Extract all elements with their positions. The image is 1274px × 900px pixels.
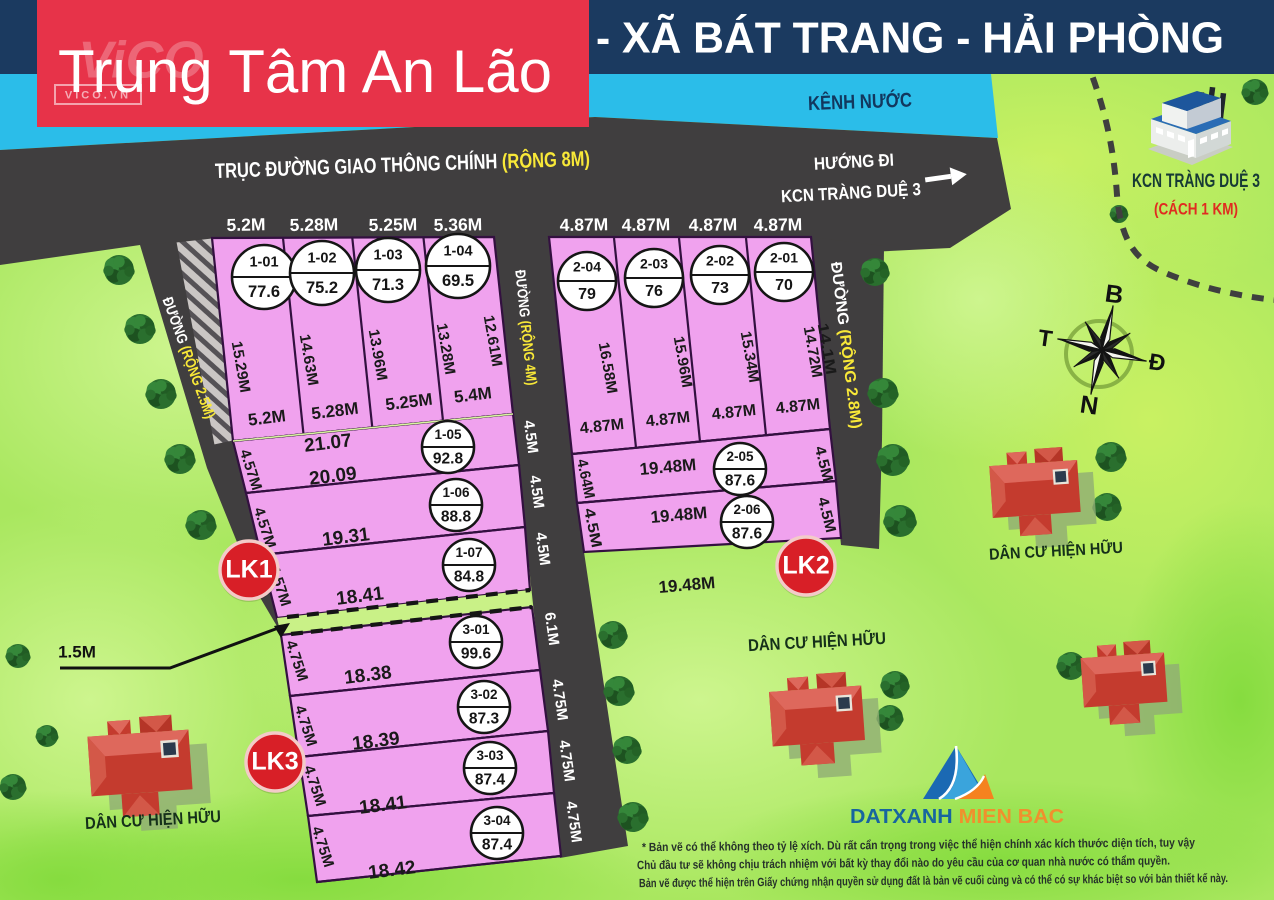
svg-text:3-04: 3-04 <box>483 813 511 828</box>
svg-text:VICO.VN: VICO.VN <box>65 89 131 101</box>
svg-text:1-04: 1-04 <box>443 243 472 259</box>
svg-text:87.6: 87.6 <box>732 526 763 543</box>
svg-text:1-02: 1-02 <box>307 250 336 266</box>
svg-text:92.8: 92.8 <box>433 451 464 468</box>
svg-text:76: 76 <box>645 283 663 300</box>
svg-text:KCN TRÀNG DUỆ 3: KCN TRÀNG DUỆ 3 <box>1132 170 1260 192</box>
svg-text:4.87M: 4.87M <box>688 214 737 235</box>
svg-text:70: 70 <box>775 277 793 294</box>
svg-text:71.3: 71.3 <box>372 276 404 294</box>
svg-text:77.6: 77.6 <box>248 283 280 301</box>
svg-text:4.87M: 4.87M <box>621 214 670 235</box>
svg-text:2-05: 2-05 <box>726 449 754 464</box>
svg-text:69.5: 69.5 <box>442 272 474 290</box>
svg-text:73: 73 <box>711 280 729 297</box>
svg-text:1.5M: 1.5M <box>58 642 96 661</box>
svg-text:5.2M: 5.2M <box>226 214 265 235</box>
svg-text:B: B <box>1103 280 1125 310</box>
svg-text:- XÃ BÁT TRANG - HẢI PHÒNG: - XÃ BÁT TRANG - HẢI PHÒNG <box>596 13 1224 63</box>
svg-text:87.3: 87.3 <box>469 711 500 728</box>
svg-text:4.87M: 4.87M <box>559 214 608 235</box>
svg-text:87.6: 87.6 <box>725 473 756 490</box>
svg-text:5.28M: 5.28M <box>289 214 338 235</box>
svg-text:ViCO: ViCO <box>78 32 203 90</box>
svg-text:3-03: 3-03 <box>476 748 504 763</box>
svg-text:2-02: 2-02 <box>706 253 734 269</box>
svg-text:1-01: 1-01 <box>249 254 278 270</box>
svg-text:N: N <box>1078 391 1100 421</box>
svg-text:1-05: 1-05 <box>434 427 462 442</box>
svg-text:2-01: 2-01 <box>770 250 798 266</box>
svg-text:2-04: 2-04 <box>573 259 601 275</box>
svg-text:DATXANH MIEN BAC: DATXANH MIEN BAC <box>850 806 1064 828</box>
svg-text:87.4: 87.4 <box>482 837 513 854</box>
svg-text:87.4: 87.4 <box>475 772 506 789</box>
svg-text:KÊNH NƯỚC: KÊNH NƯỚC <box>808 87 913 115</box>
svg-text:LK1: LK1 <box>225 556 272 584</box>
svg-text:(CÁCH 1 KM): (CÁCH 1 KM) <box>1154 199 1238 218</box>
svg-text:3-01: 3-01 <box>462 622 490 637</box>
svg-text:1-06: 1-06 <box>442 485 470 500</box>
svg-text:88.8: 88.8 <box>441 509 472 526</box>
svg-text:99.6: 99.6 <box>461 646 492 663</box>
svg-text:3-02: 3-02 <box>470 687 497 702</box>
svg-text:84.8: 84.8 <box>454 569 485 586</box>
svg-text:75.2: 75.2 <box>306 279 338 297</box>
svg-text:2-03: 2-03 <box>640 256 668 272</box>
svg-text:5.36M: 5.36M <box>433 214 482 235</box>
svg-text:LK2: LK2 <box>782 552 829 580</box>
svg-text:2-06: 2-06 <box>733 502 761 517</box>
svg-text:LK3: LK3 <box>251 748 298 776</box>
svg-text:HƯỚNG ĐI: HƯỚNG ĐI <box>813 149 894 174</box>
svg-text:79: 79 <box>578 286 596 303</box>
svg-text:1-03: 1-03 <box>373 247 402 263</box>
svg-text:5.25M: 5.25M <box>368 214 417 235</box>
svg-text:4.87M: 4.87M <box>753 214 802 235</box>
svg-text:1-07: 1-07 <box>455 545 482 560</box>
